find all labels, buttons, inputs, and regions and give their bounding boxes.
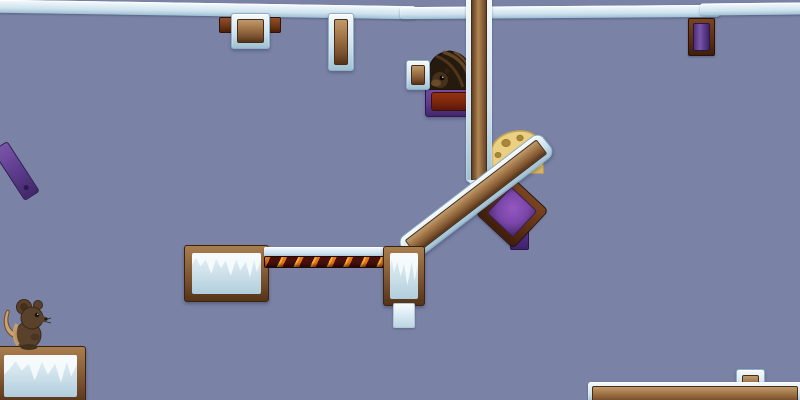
mouse-icon (1, 297, 51, 350)
wood-plank-bottom-right (588, 382, 800, 400)
wood-panel (592, 386, 798, 400)
ice-panel (4, 355, 77, 397)
wood-panel (471, 0, 487, 180)
ice-ceiling-beam (400, 5, 720, 19)
ice-block-small (383, 246, 425, 306)
lava-bar (264, 247, 385, 268)
ice-panel (192, 253, 261, 294)
game-viewport[interactable] (0, 0, 800, 400)
purple-plank-left (0, 141, 40, 201)
lava-strip (264, 256, 385, 268)
framed-wood-crate-vertical (328, 13, 354, 71)
icicles (192, 253, 261, 282)
ice-panel (390, 253, 418, 299)
vertical-wood-plank (466, 0, 492, 182)
mouse-character (1, 297, 51, 350)
icicles (390, 253, 418, 285)
purple-crate-top-right (688, 18, 715, 56)
wood-panel (411, 65, 425, 85)
framed-wood-crate-top (231, 13, 270, 49)
wood-panel (334, 19, 348, 65)
framed-wood-crate-small (406, 60, 430, 90)
ice-ceiling-beam (700, 2, 800, 15)
plank-bolt (23, 184, 30, 191)
ice-block-large (184, 245, 269, 302)
purple-panel (693, 23, 710, 51)
wood-panel (237, 19, 264, 43)
ice-block-bottom-left (0, 346, 86, 400)
ice-stub (393, 303, 415, 328)
chocolate-panel (431, 92, 469, 111)
icicles (4, 355, 77, 384)
